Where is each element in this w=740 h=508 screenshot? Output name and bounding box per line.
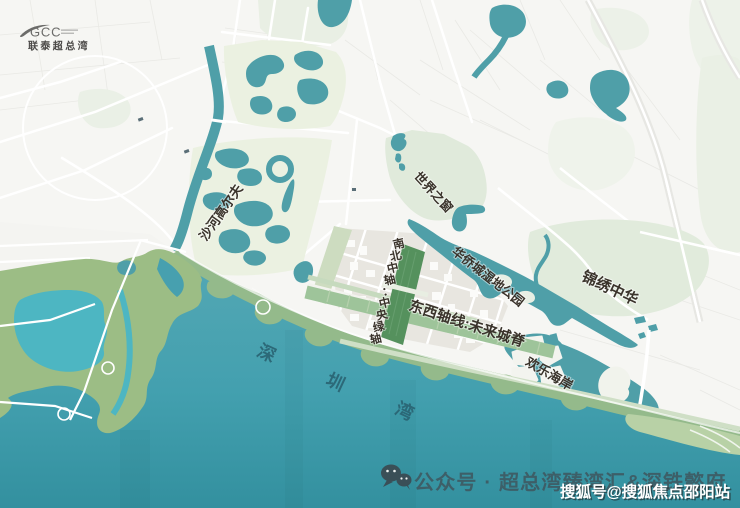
svg-text:GCC: GCC [30,25,61,40]
svg-text:联泰超总湾: 联泰超总湾 [28,40,90,53]
svg-text:搜狐号@搜狐焦点邵阳站: 搜狐号@搜狐焦点邵阳站 [560,482,731,501]
